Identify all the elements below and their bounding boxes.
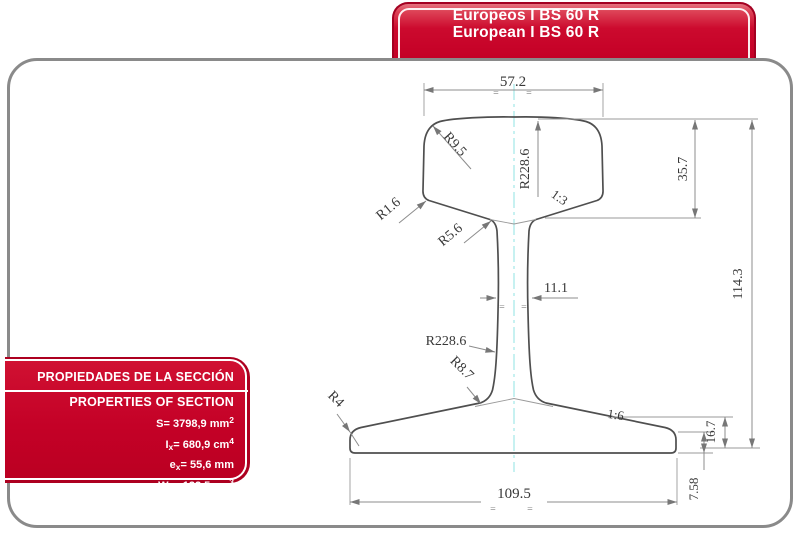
dim-label-foot-thickness: 16.7 bbox=[703, 420, 718, 443]
symmetry-mark: = bbox=[526, 88, 532, 99]
property-value: 122,5 cm bbox=[180, 480, 230, 492]
dim-label-head-depth: 35.7 bbox=[676, 157, 691, 182]
leader-foot-fillet bbox=[467, 387, 481, 404]
dim-label-crown-radius: R228.6 bbox=[518, 149, 533, 190]
dim-label-foot-fillet-radius: R8.7 bbox=[447, 354, 477, 384]
property-value: 55,6 mm bbox=[187, 459, 234, 471]
leader-underhead-corner bbox=[399, 201, 426, 223]
dim-label-total-height: 114.3 bbox=[731, 269, 746, 300]
property-value: 680,9 cm bbox=[180, 439, 230, 451]
leader-web-top-fillet bbox=[464, 221, 491, 243]
dim-label-head-side-slope: 1:3 bbox=[548, 186, 570, 208]
leader-foot-edge-radius-tail bbox=[350, 432, 359, 446]
symmetry-mark: = bbox=[493, 88, 499, 99]
properties-title-es: PROPIEDADES DE LA SECCIÓN bbox=[37, 370, 234, 384]
property-row-area: S= 3798,9 mm2 bbox=[156, 413, 234, 434]
property-row-centroid: ex= 55,6 mm bbox=[156, 454, 234, 475]
properties-title-en: PROPERTIES OF SECTION bbox=[69, 395, 234, 409]
property-symbol: W bbox=[158, 480, 168, 492]
property-row-inertia: Ix= 680,9 cm4 bbox=[156, 434, 234, 455]
dim-label-head-width: 57.2 bbox=[500, 74, 526, 90]
properties-box: PROPIEDADES DE LA SECCIÓN PROPERTIES OF … bbox=[5, 357, 250, 483]
underhead-slope-construction bbox=[490, 220, 536, 225]
dim-label-underhead-corner-radius: R1.6 bbox=[374, 195, 404, 224]
dim-label-foot-width: 109.5 bbox=[497, 486, 531, 502]
property-symbol: S bbox=[156, 418, 163, 430]
properties-divider bbox=[5, 390, 248, 392]
dim-label-web-face-radius: R228.6 bbox=[426, 334, 467, 349]
catalog-page: 57.2 R9.5 R228.6 1:3 35.7 114.3 R1.6 R5.… bbox=[0, 0, 800, 533]
banner-title: Europeos I BS 60 R European I BS 60 R bbox=[394, 7, 754, 41]
symmetry-mark: = bbox=[521, 302, 527, 313]
property-row-modulus: Wx= 122,5 cm3 bbox=[156, 475, 234, 496]
banner-title-en: European I BS 60 R bbox=[394, 24, 658, 41]
symmetry-mark: = bbox=[490, 504, 496, 515]
property-superscript: 3 bbox=[229, 477, 234, 487]
dim-label-foot-edge-thickness: 7.58 bbox=[686, 478, 701, 501]
series-banner: Europeos I BS 60 R European I BS 60 R bbox=[392, 2, 756, 58]
properties-values: S= 3798,9 mm2 Ix= 680,9 cm4 ex= 55,6 mm … bbox=[156, 413, 234, 495]
leader-web-face-radius bbox=[469, 346, 495, 352]
dim-label-foot-slope: 1:6 bbox=[606, 406, 625, 423]
dim-label-head-corner-radius: R9.5 bbox=[440, 130, 469, 160]
dim-label-foot-edge-radius: R4 bbox=[324, 388, 346, 410]
property-superscript: 2 bbox=[229, 415, 234, 425]
leader-foot-edge-radius bbox=[337, 414, 350, 432]
banner-title-es: Europeos I BS 60 R bbox=[394, 7, 658, 24]
dim-label-web-top-fillet-radius: R5.6 bbox=[436, 221, 466, 250]
property-superscript: 4 bbox=[229, 436, 234, 446]
rail-profile-outline bbox=[350, 117, 676, 453]
symmetry-mark: = bbox=[499, 302, 505, 313]
dim-label-web-thickness: 11.1 bbox=[544, 281, 568, 296]
symmetry-mark: = bbox=[527, 504, 533, 515]
property-value: 3798,9 mm bbox=[170, 418, 229, 430]
